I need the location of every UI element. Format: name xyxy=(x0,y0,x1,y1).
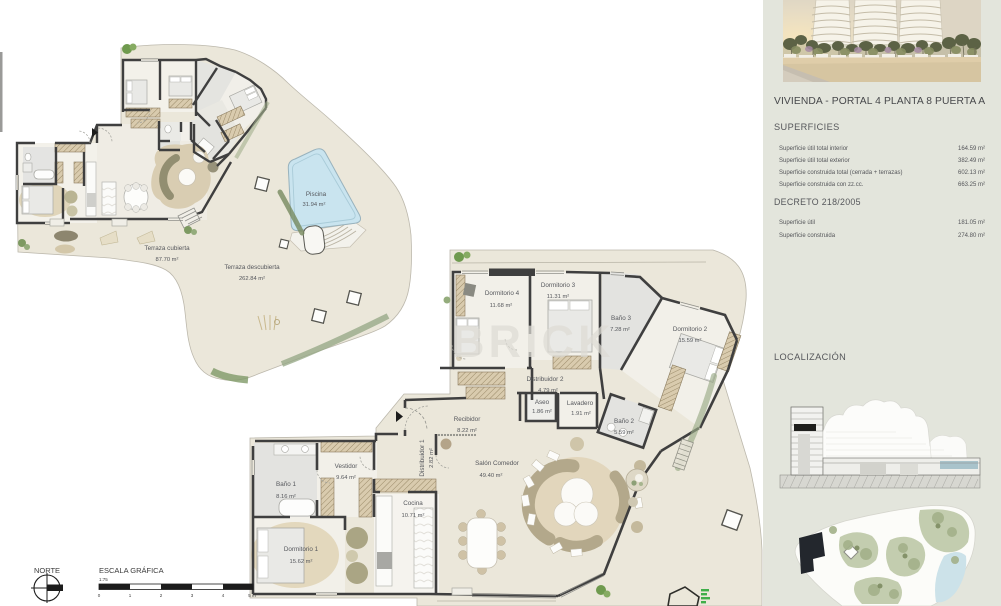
svg-text:274.80 m²: 274.80 m² xyxy=(958,233,985,239)
svg-text:11.68 m²: 11.68 m² xyxy=(490,303,513,309)
svg-text:Dormitorio 3: Dormitorio 3 xyxy=(541,282,576,289)
svg-text:Piscina: Piscina xyxy=(306,191,327,198)
svg-text:Superficie construida con zz.c: Superficie construida con zz.cc. xyxy=(779,182,864,188)
svg-text:663.25 m²: 663.25 m² xyxy=(958,182,985,188)
svg-text:164.59 m²: 164.59 m² xyxy=(958,146,985,152)
svg-text:Terraza descubierta: Terraza descubierta xyxy=(224,264,280,271)
svg-text:SUPERFICIES: SUPERFICIES xyxy=(774,122,840,132)
svg-text:49.40 m²: 49.40 m² xyxy=(480,473,503,479)
svg-text:Dormitorio 1: Dormitorio 1 xyxy=(284,546,319,553)
svg-text:Vestidor: Vestidor xyxy=(335,463,358,470)
svg-text:Baño 3: Baño 3 xyxy=(611,315,631,322)
svg-text:Superficie útil total interior: Superficie útil total interior xyxy=(779,146,848,152)
svg-text:Lavadero: Lavadero xyxy=(567,400,594,407)
svg-text:15.62 m²: 15.62 m² xyxy=(290,559,313,565)
svg-text:9.64 m²: 9.64 m² xyxy=(336,475,356,481)
svg-text:262.84 m²: 262.84 m² xyxy=(239,276,265,282)
svg-text:31.94 m²: 31.94 m² xyxy=(303,202,326,208)
svg-text:7.28 m²: 7.28 m² xyxy=(610,327,630,333)
svg-text:1.91 m²: 1.91 m² xyxy=(571,411,591,417)
svg-text:11.31 m²: 11.31 m² xyxy=(547,294,570,300)
svg-text:Recibidor: Recibidor xyxy=(454,416,481,423)
svg-text:ESCALA GRÁFICA: ESCALA GRÁFICA xyxy=(99,566,164,575)
svg-text:Aseo: Aseo xyxy=(535,399,550,406)
svg-text:15.59 m²: 15.59 m² xyxy=(679,338,702,344)
svg-text:LOCALIZACIÓN: LOCALIZACIÓN xyxy=(774,352,846,362)
svg-text:1.86 m²: 1.86 m² xyxy=(532,409,552,415)
svg-text:2.82 m²: 2.82 m² xyxy=(429,448,435,468)
svg-text:1:75: 1:75 xyxy=(99,577,108,582)
svg-text:10.71 m²: 10.71 m² xyxy=(402,513,425,519)
svg-text:8.22 m²: 8.22 m² xyxy=(457,428,477,434)
svg-text:VIVIENDA - PORTAL 4 PLANTA 8: VIVIENDA - PORTAL 4 PLANTA 8 PUERTA A xyxy=(774,96,985,107)
svg-text:4.79 m²: 4.79 m² xyxy=(538,388,558,394)
svg-text:602.13 m²: 602.13 m² xyxy=(958,170,985,176)
svg-text:Dormitorio 4: Dormitorio 4 xyxy=(485,290,520,297)
svg-text:5.59 m²: 5.59 m² xyxy=(614,430,634,436)
svg-text:Salón Comedor: Salón Comedor xyxy=(475,460,519,467)
svg-text:Distribuidor 1: Distribuidor 1 xyxy=(419,439,426,477)
svg-text:8.16 m²: 8.16 m² xyxy=(276,494,296,500)
svg-text:5 m: 5 m xyxy=(248,593,256,598)
svg-text:Superficie útil total exterior: Superficie útil total exterior xyxy=(779,158,850,164)
svg-text:Cocina: Cocina xyxy=(403,500,423,507)
svg-text:Baño 2: Baño 2 xyxy=(614,418,634,425)
svg-text:Superficie construida total (c: Superficie construida total (cerrada + t… xyxy=(779,170,903,176)
svg-text:Baño 1: Baño 1 xyxy=(276,481,296,488)
svg-text:BRICK: BRICK xyxy=(452,316,615,367)
svg-text:Distribuidor 2: Distribuidor 2 xyxy=(526,376,564,383)
svg-text:87.70 m²: 87.70 m² xyxy=(156,257,179,263)
svg-text:Dormitorio 2: Dormitorio 2 xyxy=(673,326,708,333)
svg-text:382.49 m²: 382.49 m² xyxy=(958,158,985,164)
svg-text:Superficie construida: Superficie construida xyxy=(779,233,836,239)
svg-text:Superficie útil: Superficie útil xyxy=(779,220,815,226)
svg-text:DECRETO 218/2005: DECRETO 218/2005 xyxy=(774,197,861,207)
svg-text:Terraza cubierta: Terraza cubierta xyxy=(144,245,190,252)
svg-text:181.05 m²: 181.05 m² xyxy=(958,220,985,226)
